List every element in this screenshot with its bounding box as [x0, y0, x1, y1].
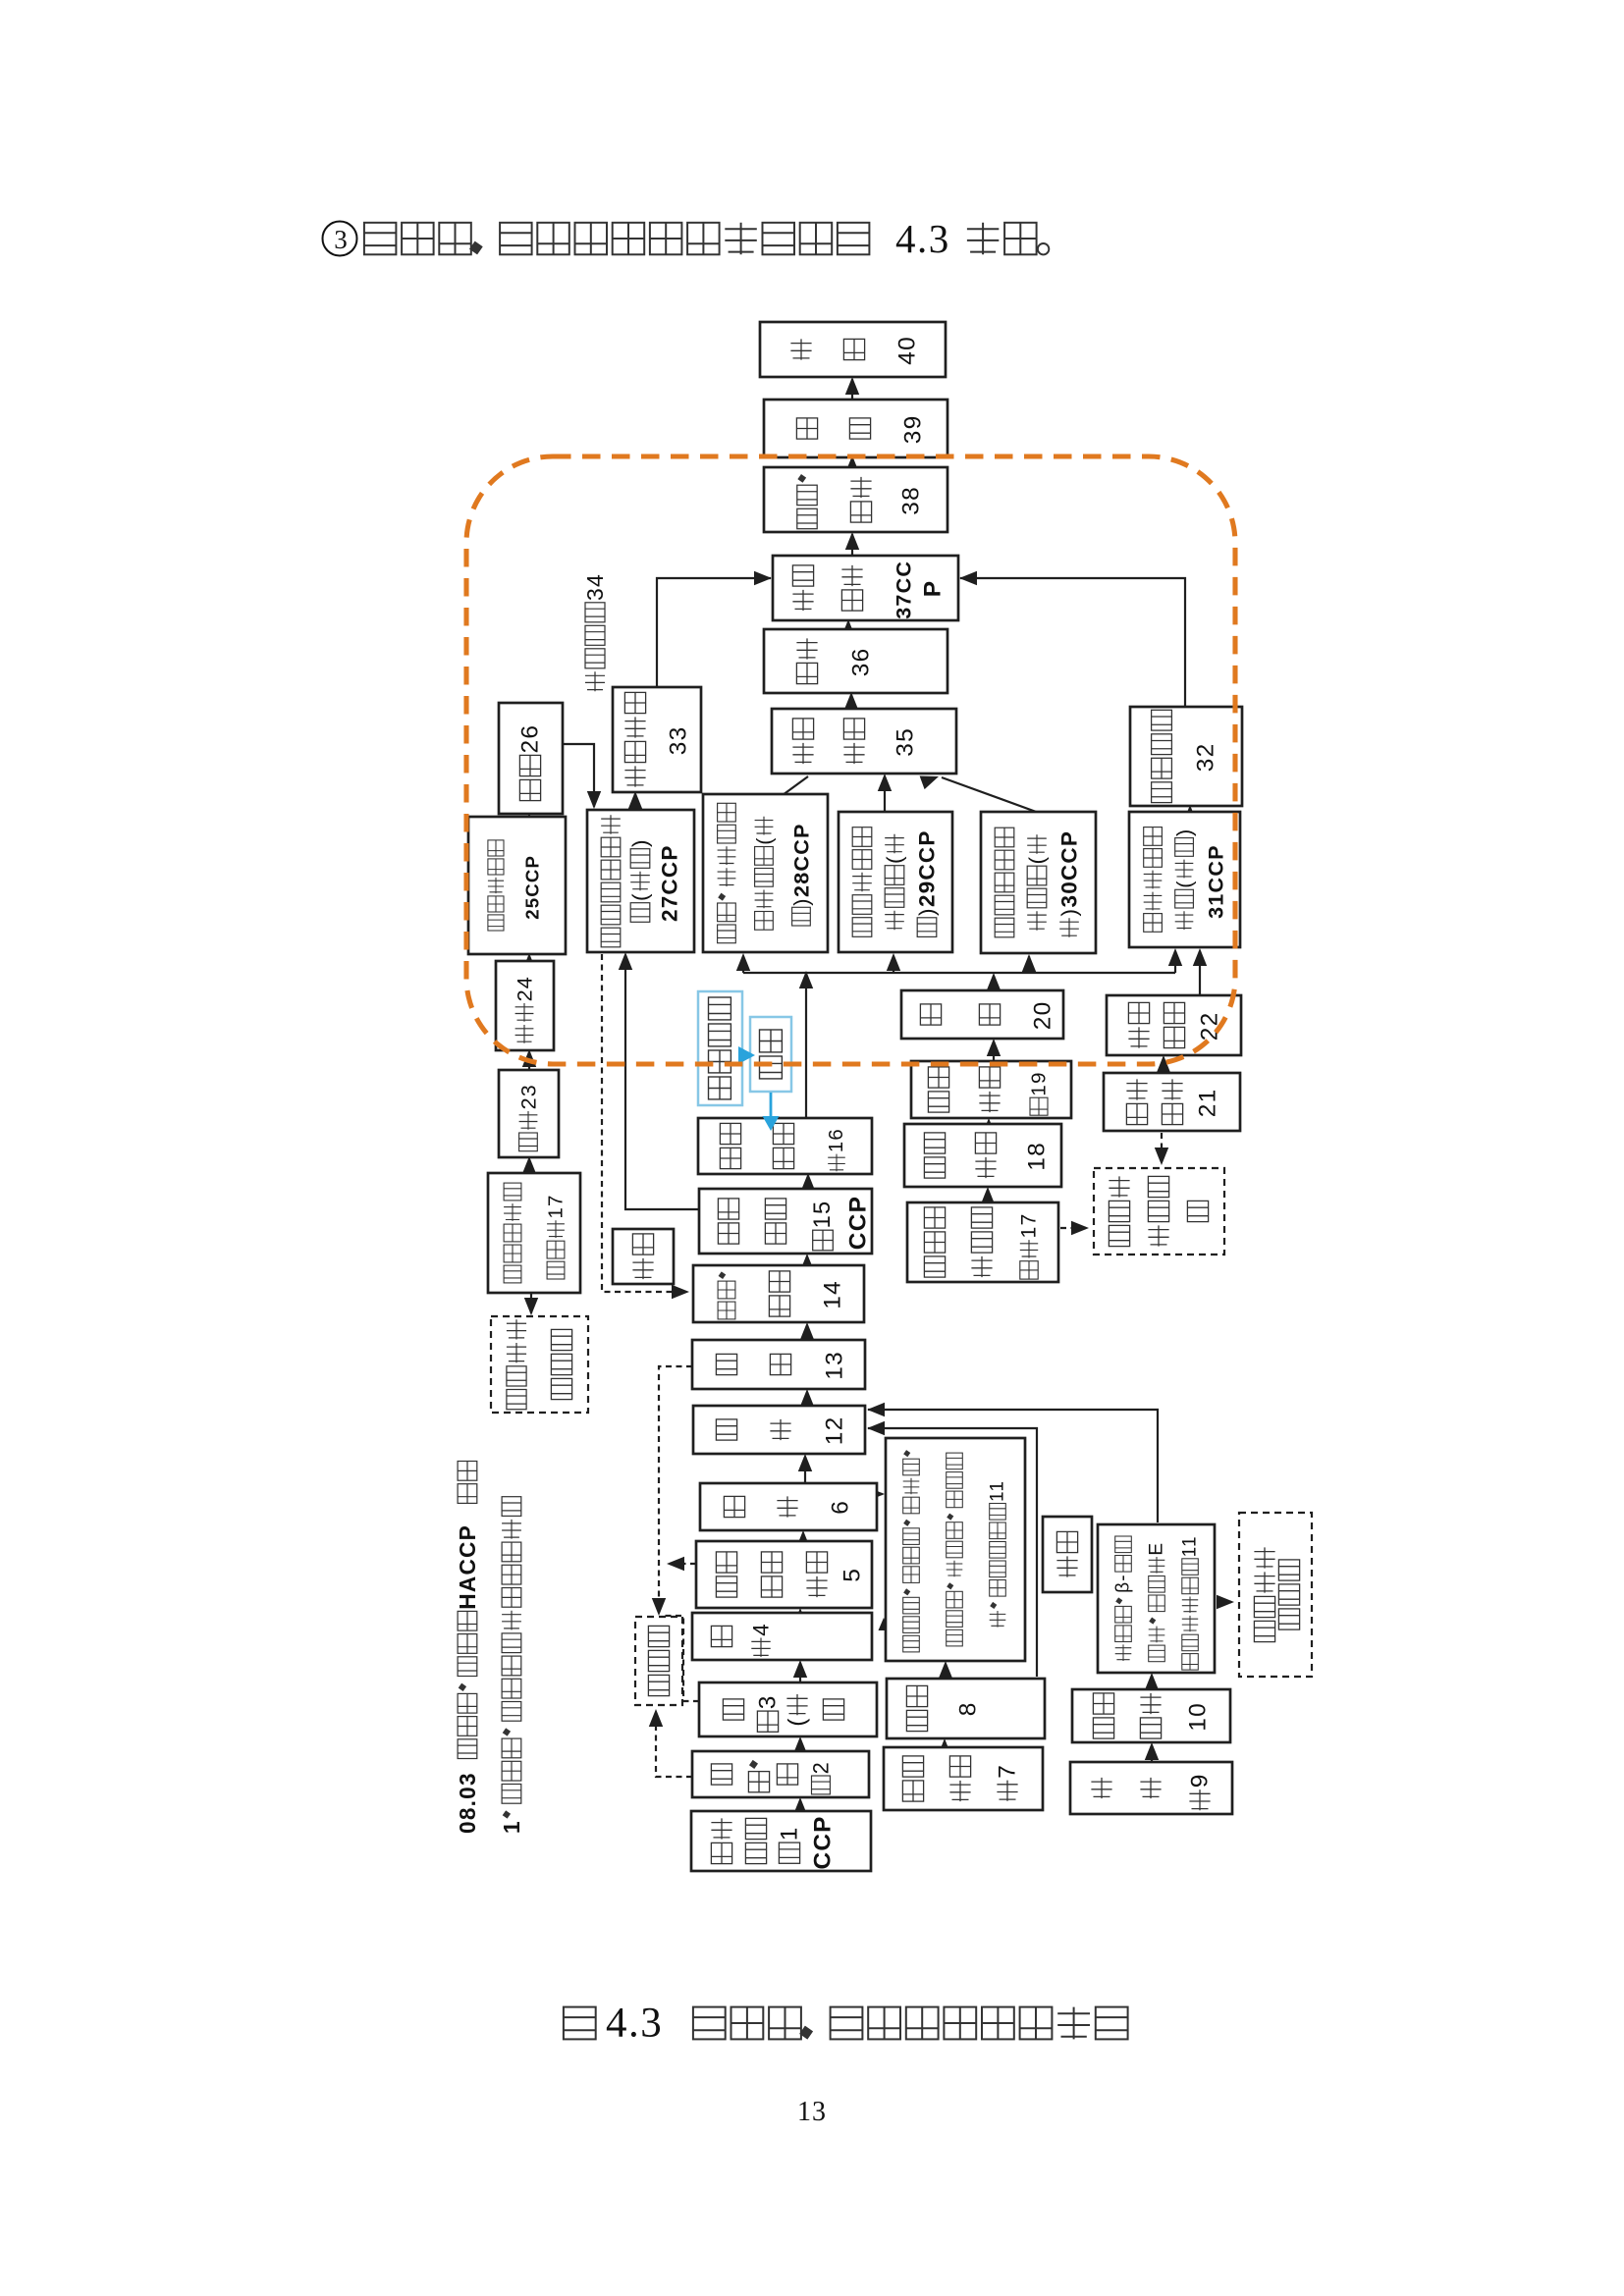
- svg-text:27CCP: 27CCP: [658, 844, 682, 922]
- svg-text:33: 33: [666, 726, 692, 756]
- svg-text:31CCP: 31CCP: [1204, 844, 1228, 919]
- svg-text:4.3: 4.3: [606, 2001, 663, 2047]
- svg-text:21: 21: [1195, 1089, 1221, 1118]
- svg-text:4.3: 4.3: [895, 216, 950, 261]
- svg-text:35: 35: [893, 727, 919, 757]
- svg-text:(: (: [1025, 856, 1050, 865]
- svg-text:19: 19: [1028, 1071, 1051, 1095]
- svg-text:1: 1: [499, 1820, 524, 1834]
- svg-text:18: 18: [1024, 1142, 1051, 1171]
- svg-text:3: 3: [755, 1694, 782, 1709]
- svg-text:(: (: [752, 836, 777, 844]
- svg-text:20: 20: [1030, 1001, 1056, 1031]
- svg-text:): ): [1172, 828, 1197, 836]
- svg-text:13: 13: [822, 1351, 848, 1380]
- svg-text:8: 8: [955, 1701, 982, 1716]
- svg-text:11: 11: [1180, 1535, 1201, 1557]
- svg-text:): ): [1057, 908, 1082, 917]
- svg-text:3: 3: [334, 225, 348, 254]
- svg-text:32: 32: [1193, 743, 1219, 773]
- svg-text:11: 11: [988, 1480, 1008, 1502]
- svg-text:29CCP: 29CCP: [915, 829, 940, 907]
- svg-text:13: 13: [797, 2097, 827, 2127]
- svg-text:39: 39: [900, 415, 927, 445]
- svg-text:30CCP: 30CCP: [1057, 830, 1082, 908]
- svg-text:34: 34: [582, 573, 608, 601]
- svg-text:1: 1: [777, 1826, 803, 1841]
- svg-text:4: 4: [749, 1623, 774, 1636]
- svg-text:(: (: [1172, 880, 1197, 887]
- svg-text:16: 16: [826, 1128, 847, 1152]
- svg-text:E: E: [1147, 1542, 1167, 1556]
- svg-text:28CCP: 28CCP: [789, 823, 814, 897]
- svg-text:10: 10: [1185, 1702, 1212, 1732]
- svg-text:9: 9: [1187, 1773, 1214, 1788]
- svg-text:6: 6: [828, 1500, 854, 1515]
- svg-text:P: P: [920, 580, 947, 598]
- svg-text:23: 23: [516, 1084, 541, 1109]
- svg-text:HACCP: HACCP: [455, 1524, 480, 1610]
- svg-text:CCP: CCP: [845, 1196, 872, 1250]
- svg-text:5: 5: [839, 1568, 866, 1582]
- svg-text:β-: β-: [1113, 1574, 1134, 1593]
- svg-text:12: 12: [822, 1416, 848, 1446]
- svg-text:26: 26: [517, 724, 544, 754]
- svg-text:08.03: 08.03: [455, 1772, 480, 1834]
- svg-text:(: (: [628, 892, 653, 901]
- svg-text:38: 38: [898, 486, 925, 515]
- svg-text:(: (: [785, 1717, 811, 1726]
- svg-text:7: 7: [995, 1764, 1021, 1779]
- svg-text:14: 14: [820, 1280, 846, 1309]
- svg-text:37CC: 37CC: [892, 561, 916, 619]
- svg-text:36: 36: [848, 648, 875, 677]
- svg-text:24: 24: [513, 976, 537, 1001]
- svg-text:(: (: [883, 855, 907, 864]
- svg-text:17: 17: [1018, 1213, 1041, 1239]
- svg-text:): ): [789, 897, 814, 905]
- svg-text:): ): [628, 838, 653, 847]
- svg-text:25CCP: 25CCP: [522, 855, 543, 920]
- svg-text:17: 17: [545, 1194, 568, 1218]
- svg-text:2: 2: [809, 1761, 834, 1774]
- svg-text:): ): [915, 907, 940, 916]
- svg-text:15: 15: [810, 1201, 836, 1229]
- svg-text:40: 40: [894, 336, 921, 365]
- svg-text:CCP: CCP: [810, 1815, 837, 1869]
